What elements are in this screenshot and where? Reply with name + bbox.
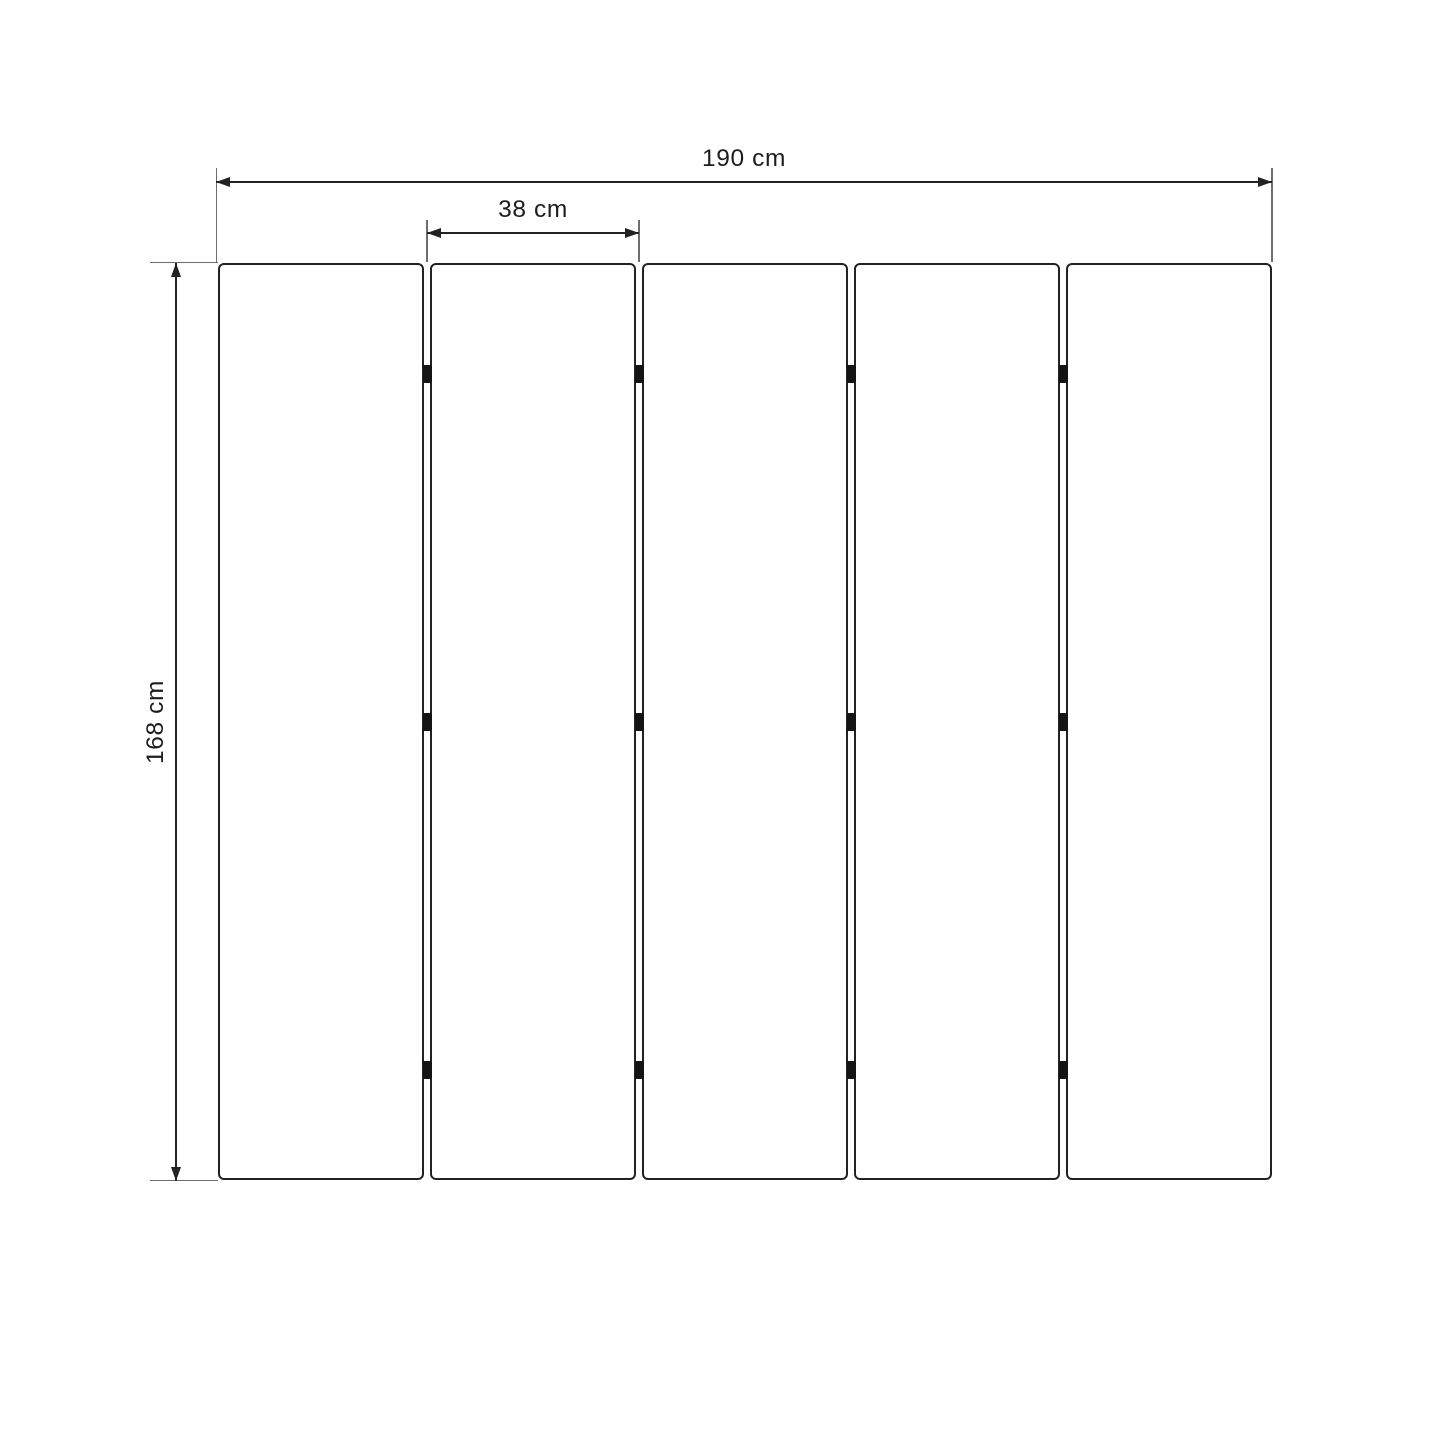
arrowhead-up-icon (171, 263, 181, 277)
panel-dimension-diagram: 190 cm 38 cm 168 cm (0, 0, 1445, 1445)
panel-width-dimension-line (427, 232, 639, 234)
arrowhead-right-icon (625, 228, 639, 238)
panel (854, 263, 1060, 1180)
hinge-mark (847, 1061, 856, 1079)
panel (430, 263, 636, 1180)
panel-width-label: 38 cm (498, 196, 568, 224)
total-width-label: 190 cm (702, 145, 786, 173)
arrowhead-right-icon (1258, 177, 1272, 187)
height-extension-top (150, 262, 218, 263)
hinge-mark (1059, 713, 1068, 731)
height-label: 168 cm (142, 680, 170, 764)
arrowhead-left-icon (427, 228, 441, 238)
hinge-mark (1059, 365, 1068, 383)
panel (218, 263, 424, 1180)
hinge-mark (423, 1061, 432, 1079)
hinge-mark (635, 1061, 644, 1079)
hinge-mark (635, 365, 644, 383)
height-dimension-line (175, 263, 177, 1181)
arrowhead-down-icon (171, 1167, 181, 1181)
panel (1066, 263, 1272, 1180)
hinge-mark (1059, 1061, 1068, 1079)
hinge-mark (423, 365, 432, 383)
panel-width-extension-right (638, 220, 639, 262)
arrowhead-left-icon (216, 177, 230, 187)
hinge-mark (847, 365, 856, 383)
hinge-mark (423, 713, 432, 731)
hinge-mark (635, 713, 644, 731)
total-width-dimension-line (216, 181, 1272, 183)
height-extension-bottom (150, 1180, 218, 1181)
panel-width-extension-left (426, 220, 427, 262)
panel (642, 263, 848, 1180)
hinge-mark (847, 713, 856, 731)
